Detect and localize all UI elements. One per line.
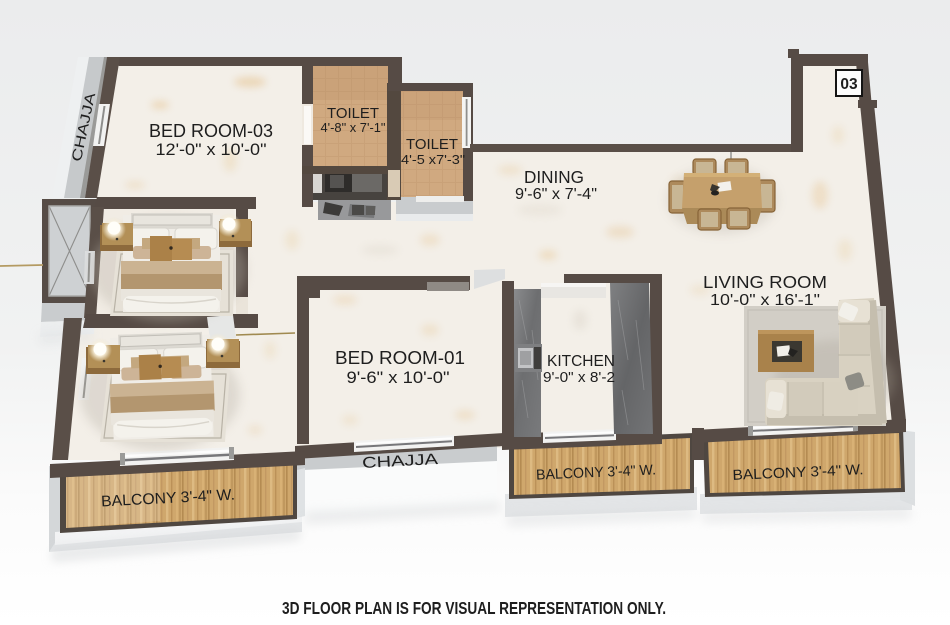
svg-text:BED ROOM-03: BED ROOM-03	[149, 121, 273, 141]
svg-text:TOILET: TOILET	[406, 137, 458, 153]
svg-text:DINING: DINING	[524, 167, 584, 187]
svg-text:12'-0" x 10'-0": 12'-0" x 10'-0"	[156, 141, 267, 159]
svg-text:4'-8" x 7'-1": 4'-8" x 7'-1"	[321, 120, 386, 135]
svg-text:LIVING ROOM: LIVING ROOM	[703, 272, 827, 292]
svg-text:9'-6" x 10'-0": 9'-6" x 10'-0"	[347, 369, 450, 387]
svg-text:KITCHEN: KITCHEN	[547, 353, 615, 370]
svg-text:10'-0" x 16'-1": 10'-0" x 16'-1"	[710, 292, 820, 309]
svg-text:BED ROOM-01: BED ROOM-01	[335, 348, 465, 368]
svg-text:4'-5 x7'-3": 4'-5 x7'-3"	[401, 152, 465, 167]
svg-text:9'-0" x 8'-2: 9'-0" x 8'-2	[543, 370, 615, 386]
svg-text:03: 03	[840, 76, 858, 93]
svg-text:3D FLOOR PLAN IS FOR VISUAL RE: 3D FLOOR PLAN IS FOR VISUAL REPRESENTATI…	[282, 598, 666, 618]
svg-text:9'-6" x 7'-4": 9'-6" x 7'-4"	[515, 186, 597, 203]
